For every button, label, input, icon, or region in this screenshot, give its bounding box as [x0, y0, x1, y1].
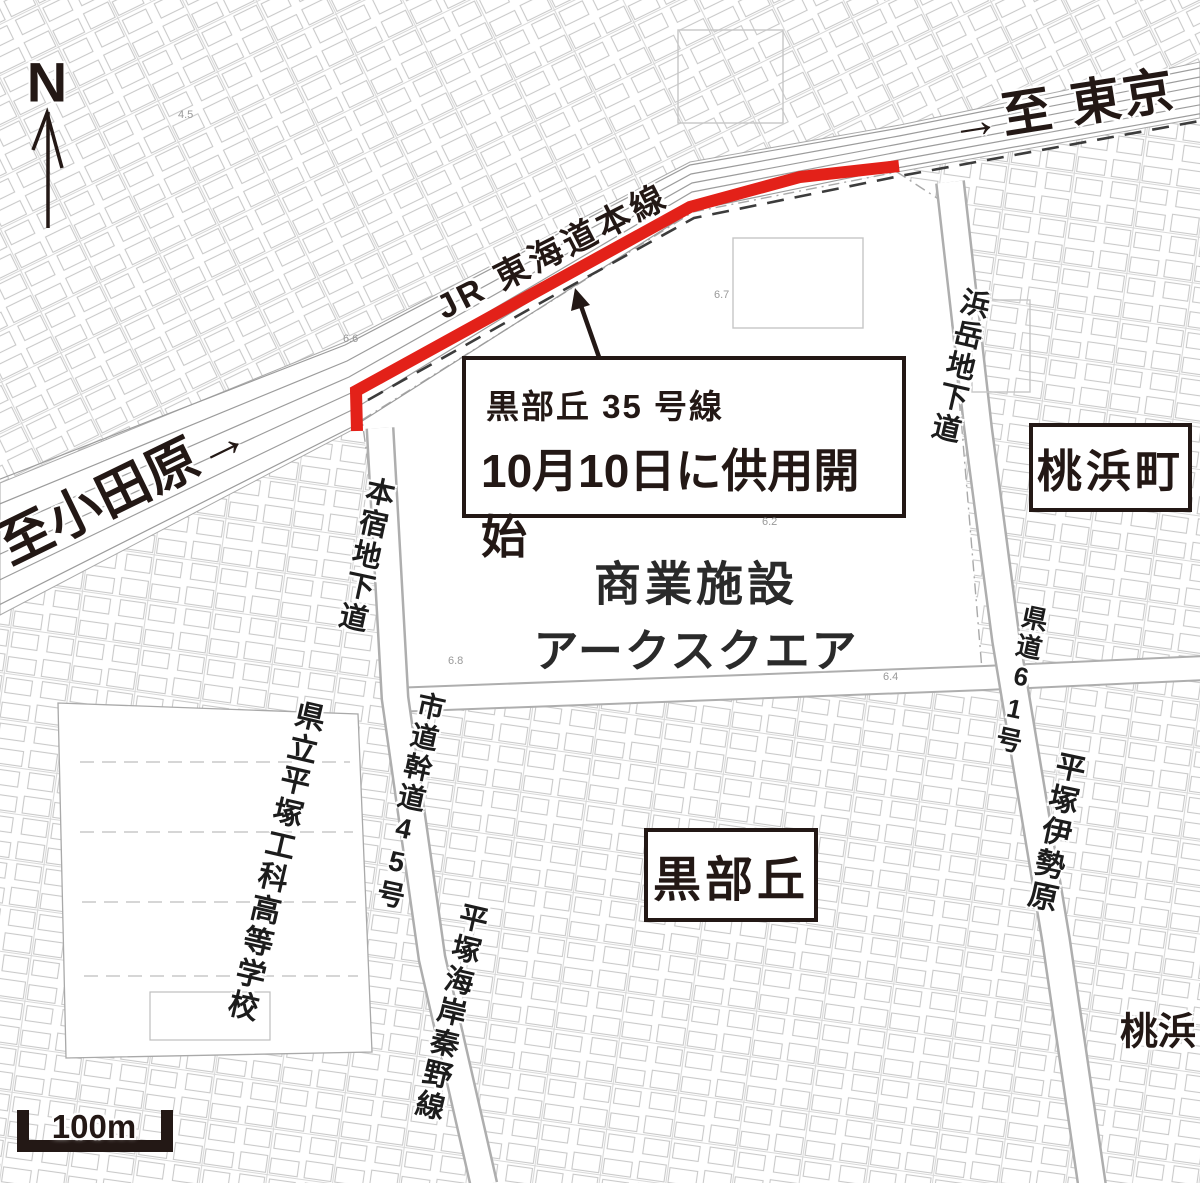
callout-opening-notice: 10月10日に供用開始: [481, 435, 902, 567]
district-box-kurobegaoka: 黒部丘: [644, 828, 818, 922]
facility-type: 商業施設: [534, 550, 859, 618]
spot-elevation: 6.6: [343, 333, 358, 345]
callout-road-name: 黒部丘 35 号線: [486, 380, 902, 428]
district-box-momohama-cho: 桃浜町: [1029, 423, 1192, 512]
compass-north-label: N: [27, 50, 67, 115]
facility-name: アークスクエア: [534, 618, 859, 683]
school-block: [58, 703, 372, 1058]
district-label-momohama: 桃浜: [1120, 1001, 1196, 1056]
spot-elevation: 6.8: [448, 655, 463, 667]
map-canvas: N →至 東京 至小田原→ JR 東海道本線 黒部丘 35 号線 10月10日に…: [0, 0, 1200, 1183]
spot-elevation: 4.5: [178, 109, 193, 121]
facility-label: 商業施設 アークスクエア: [534, 550, 859, 683]
callout-box: 黒部丘 35 号線 10月10日に供用開始: [462, 356, 906, 518]
scale-bar-label: 100m: [52, 1108, 136, 1146]
spot-elevation: 6.7: [714, 289, 729, 301]
spot-elevation: 6.2: [762, 516, 777, 528]
spot-elevation: 6.4: [883, 671, 898, 683]
